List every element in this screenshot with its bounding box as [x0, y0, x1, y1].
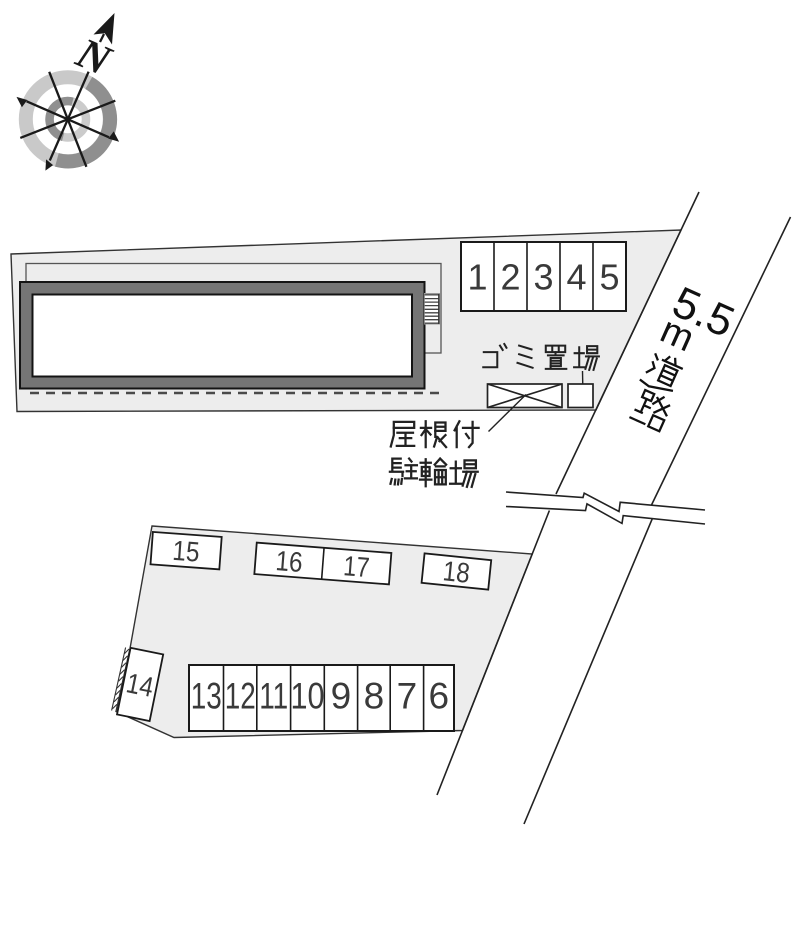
svg-text:7: 7 [397, 676, 418, 717]
svg-text:8: 8 [364, 676, 385, 717]
svg-text:10: 10 [291, 676, 325, 717]
svg-text:11: 11 [259, 676, 288, 717]
svg-text:5: 5 [599, 257, 619, 298]
svg-text:4: 4 [566, 257, 586, 298]
svg-text:13: 13 [191, 676, 222, 717]
svg-text:16: 16 [275, 545, 304, 578]
svg-text:18: 18 [441, 555, 471, 589]
svg-text:17: 17 [342, 550, 370, 583]
svg-text:12: 12 [225, 676, 256, 717]
svg-text:2: 2 [500, 257, 520, 298]
svg-text:9: 9 [331, 676, 352, 717]
svg-text:6: 6 [429, 676, 450, 717]
svg-text:3: 3 [533, 257, 553, 298]
svg-text:1: 1 [467, 257, 487, 298]
svg-text:15: 15 [171, 535, 200, 568]
